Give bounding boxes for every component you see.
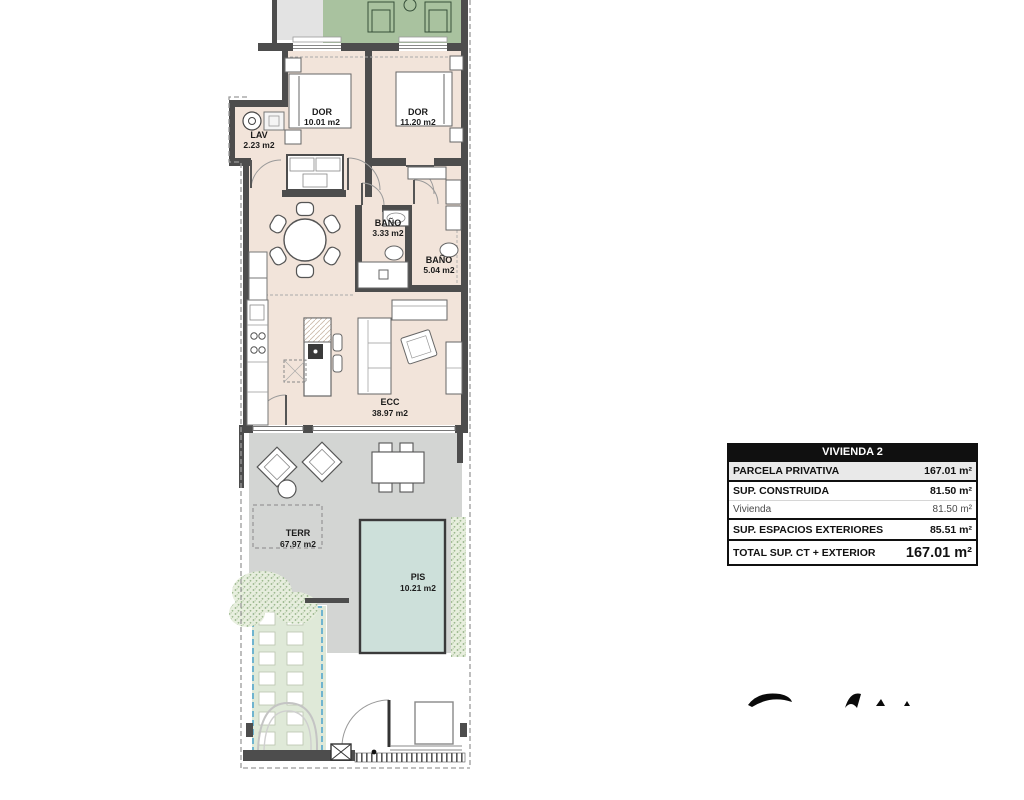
row-value: 167.01 m² [906,545,972,561]
room-area-pis: 10.21 m2 [400,583,436,593]
row-label: TOTAL SUP. CT + EXTERIOR [733,547,875,559]
roof-terrace [277,0,463,43]
floor-plan-drawing: DOR 10.01 m2 DOR 11.20 m2 LAV 2.23 m2 BA… [0,0,1024,800]
room-label-dor2: DOR [408,107,429,117]
table-row: SUP. ESPACIOS EXTERIORES 85.51 m² [729,518,976,539]
row-value: 81.50 m² [933,504,972,515]
paver-garden [252,606,326,757]
row-label: PARCELA PRIVATIVA [733,465,839,477]
green-terrace [323,0,463,43]
laundry-appliances [243,112,284,130]
wall-units [249,252,267,302]
slider-panel [313,427,455,431]
washing-machine [243,112,261,130]
stool [333,355,342,372]
row-value: 81.50 m² [930,485,972,497]
room-area-bano1: 3.33 m2 [372,228,403,238]
row-label: SUP. CONSTRUIDA [733,485,829,497]
row-value: 167.01 m² [924,465,972,477]
row-label: Vivienda [733,504,771,515]
neighbor-area [277,0,323,40]
room-area-dor2: 11.20 m2 [400,117,436,127]
page: DOR 10.01 m2 DOR 11.20 m2 LAV 2.23 m2 BA… [0,0,1024,800]
vegetation-strip [451,517,466,657]
table-row-total: TOTAL SUP. CT + EXTERIOR 167.01 m² [729,539,976,564]
room-area-bano2: 5.04 m2 [423,265,454,275]
logo-fragment [748,693,910,708]
room-label-lav: LAV [250,130,267,140]
hall-closet [287,155,343,190]
garden-bottom [331,702,465,762]
room-label-ecc: ECC [380,397,400,407]
room-label-terr: TERR [286,528,311,538]
summary-table-title: VIVIENDA 2 [729,445,976,460]
stool [333,334,342,351]
table-row: Vivienda 81.50 m² [729,500,976,518]
summary-table: VIVIENDA 2 PARCELA PRIVATIVA 167.01 m² S… [727,443,978,566]
toilet [385,246,403,260]
slider-panel [253,427,303,431]
table-row: SUP. CONSTRUIDA 81.50 m² [729,480,976,500]
row-value: 85.51 m² [930,524,972,536]
gate-post [372,750,377,755]
room-area-ecc: 38.97 m2 [372,408,408,418]
side-table [278,480,296,498]
round-table [284,219,326,261]
room-label-bano2: BAÑO [426,255,453,265]
gate-hatch [355,753,465,762]
table-row: PARCELA PRIVATIVA 167.01 m² [729,460,976,480]
room-area-dor1: 10.01 m2 [304,117,340,127]
room-area-terr: 67.97 m2 [280,539,316,549]
storage-box [415,702,453,744]
sofa-chaise [358,318,391,394]
room-label-bano1: BAÑO [375,218,402,228]
sofa-back [392,300,447,320]
room-label-dor1: DOR [312,107,333,117]
room-area-lav: 2.23 m2 [243,140,274,150]
room-label-pis: PIS [411,572,426,582]
row-label: SUP. ESPACIOS EXTERIORES [733,524,883,536]
